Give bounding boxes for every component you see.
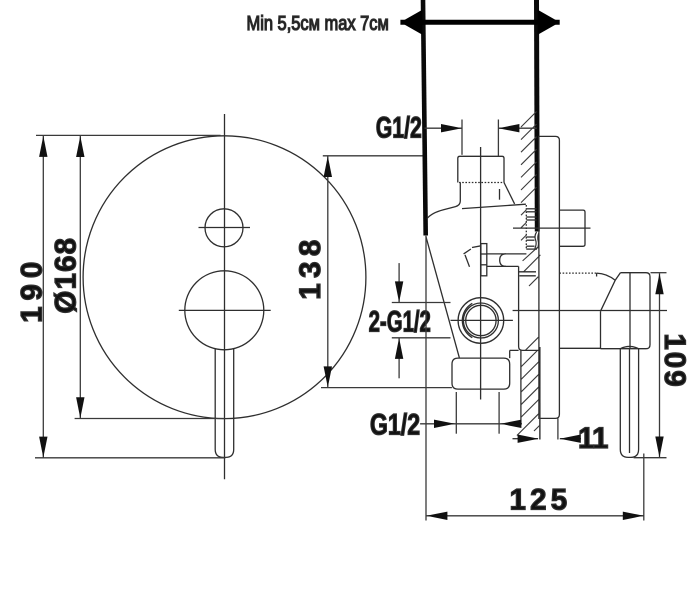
- svg-text:G1/2: G1/2: [376, 112, 422, 145]
- svg-text:109: 109: [658, 333, 691, 388]
- svg-text:138: 138: [294, 234, 327, 299]
- svg-text:125: 125: [510, 484, 572, 517]
- svg-text:11: 11: [578, 422, 608, 455]
- svg-text:G1/2: G1/2: [370, 409, 420, 442]
- svg-text:2-G1/2: 2-G1/2: [369, 306, 431, 339]
- svg-text:190: 190: [15, 256, 48, 323]
- svg-text:Ø168: Ø168: [50, 237, 83, 314]
- svg-text:Min 5,5см max 7см: Min 5,5см max 7см: [247, 12, 389, 35]
